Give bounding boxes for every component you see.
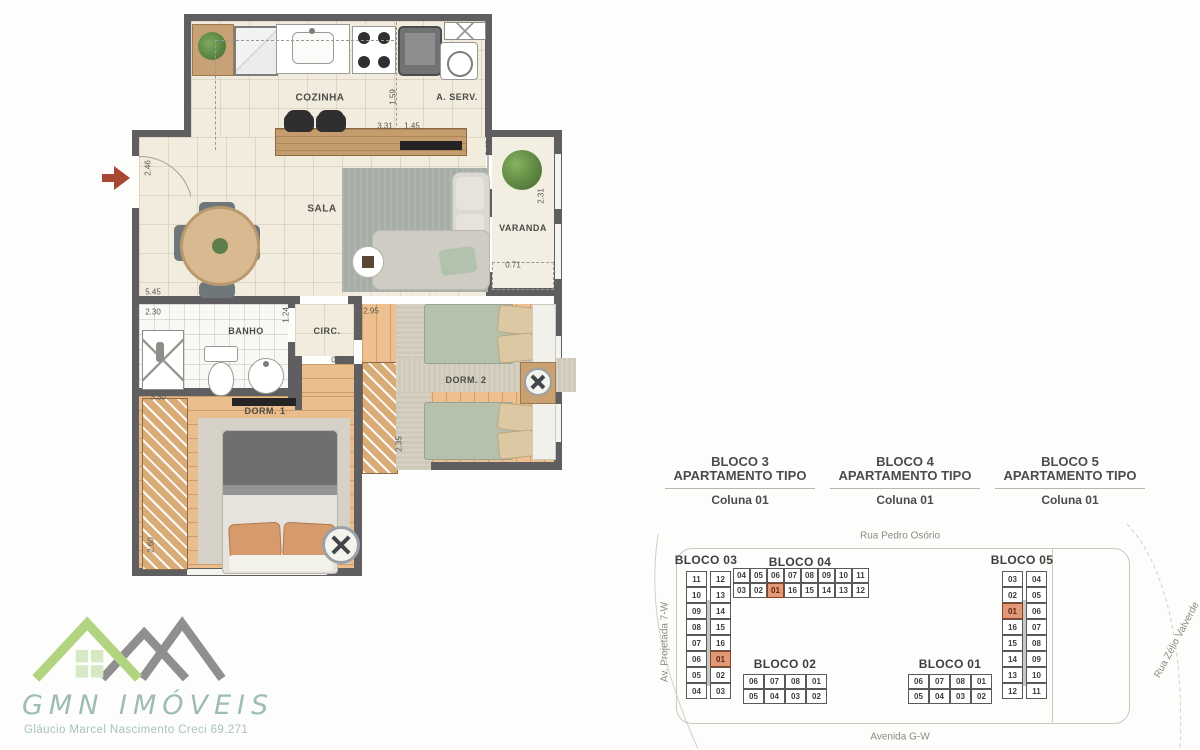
street-label-top: Rua Pedro Osório (860, 531, 940, 542)
room-label-aserv: A. SERV. (436, 92, 478, 102)
unit-cell: 06 (767, 568, 784, 583)
shower-column-icon (156, 342, 164, 362)
lot-divider-line (1052, 548, 1053, 722)
dim-label: 1.59 (389, 89, 398, 105)
wall (184, 14, 191, 132)
wall (132, 130, 191, 137)
unit-cell-highlighted: 01 (1002, 603, 1023, 619)
street-label-bottom: Avenida G-W (870, 732, 929, 743)
brand-tagline: Gláucio Marcel Nascimento Creci 69.271 (24, 724, 248, 736)
header-column: Coluna 01 (810, 493, 1000, 507)
unit-cell: 09 (686, 603, 707, 619)
unit-cell: 01 (971, 674, 992, 689)
brand-name: GMN IMÓVEIS (22, 690, 274, 721)
wall (486, 130, 562, 137)
unit-cell: 15 (801, 583, 818, 598)
header-block-name: BLOCO 4 (810, 455, 1000, 469)
dim-label: 2.40 (485, 140, 494, 156)
room-label-cozinha: COZINHA (295, 93, 344, 104)
street-label-left: Av. Projetada 7-W (660, 602, 671, 682)
unit-cell: 13 (710, 587, 731, 603)
dim-label: 2.35 (395, 436, 404, 452)
header-type: APARTAMENTO TIPO (645, 469, 835, 483)
unit-cell: 02 (750, 583, 767, 598)
header-type: APARTAMENTO TIPO (975, 469, 1165, 483)
unit-cell: 02 (710, 667, 731, 683)
balcony-utility-area (492, 262, 554, 290)
pillow-icon (497, 402, 536, 433)
service-divider-line (396, 22, 397, 136)
unit-cell: 08 (785, 674, 806, 689)
entry-arrow-tail (102, 174, 114, 182)
wall (184, 14, 485, 21)
room-label-banho: BANHO (228, 326, 264, 336)
header-divider (665, 488, 815, 489)
side-table (352, 246, 384, 278)
toilet-icon (208, 362, 234, 396)
wall (354, 296, 362, 340)
unit-cell: 05 (743, 689, 764, 704)
pillow-icon (497, 304, 536, 336)
unit-cell: 04 (764, 689, 785, 704)
block-label-bloco03: BLOCO 03 (675, 553, 737, 567)
dining-table (180, 206, 260, 286)
room-label-varanda: VARANDA (499, 223, 547, 233)
site-plan: Rua Pedro Osório Avenida G-W Av. Projeta… (640, 520, 1200, 750)
unit-cell: 14 (710, 603, 731, 619)
unit-cell: 05 (686, 667, 707, 683)
dim-label: 2.95 (363, 307, 379, 316)
dim-label: 2.31 (537, 188, 546, 204)
unit-cell: 04 (733, 568, 750, 583)
block-label-bloco01: BLOCO 01 (919, 657, 981, 671)
faucet-icon (309, 28, 315, 34)
unit-cell: 04 (929, 689, 950, 704)
stove-icon (352, 26, 396, 74)
header-divider (995, 488, 1145, 489)
header-divider (830, 488, 980, 489)
agency-logo: GMN IMÓVEIS Gláucio Marcel Nascimento Cr… (22, 612, 282, 742)
header-column: Coluna 01 (645, 493, 835, 507)
apartment-floor-plan: COZINHA A. SERV. SALA VARANDA BANHO CIRC… (130, 14, 566, 580)
unit-cell: 06 (743, 674, 764, 689)
unit-cell: 13 (835, 583, 852, 598)
sofa-blanket (438, 246, 477, 277)
header-block-name: BLOCO 5 (975, 455, 1165, 469)
unit-cell: 12 (852, 583, 869, 598)
header-column: Coluna 01 (975, 493, 1165, 507)
unit-grid-bloco04: 04050607080910110302011615141312 (733, 568, 869, 598)
fridge-icon (398, 26, 442, 76)
block-label-bloco05: BLOCO 05 (991, 553, 1053, 567)
bath-sink-icon (248, 358, 284, 394)
room-label-dorm2: DORM. 2 (445, 375, 486, 385)
unit-cell: 04 (686, 683, 707, 699)
unit-cell: 02 (971, 689, 992, 704)
unit-cell: 03 (710, 683, 731, 699)
unit-cell: 16 (784, 583, 801, 598)
room-label-circ: CIRC. (314, 326, 341, 336)
stool-icon (286, 110, 312, 132)
unit-cell: 14 (1002, 651, 1023, 667)
dim-label: 1.45 (404, 122, 420, 131)
dim-label: 0.90 (331, 356, 347, 365)
dim-label: 3.31 (377, 122, 393, 131)
unit-cell: 12 (1002, 683, 1023, 699)
page: COZINHA A. SERV. SALA VARANDA BANHO CIRC… (0, 0, 1200, 750)
unit-cell: 06 (908, 674, 929, 689)
unit-cell: 11 (1026, 683, 1047, 699)
unit-cell: 10 (686, 587, 707, 603)
guide-line (215, 40, 216, 150)
unit-cell: 16 (1002, 619, 1023, 635)
unit-grid-bloco01: 0607080105040302 (908, 674, 992, 704)
block-label-bloco02: BLOCO 02 (754, 657, 816, 671)
wall (295, 356, 302, 410)
unit-cell: 14 (818, 583, 835, 598)
unit-cell: 07 (764, 674, 785, 689)
header-bloco-4: BLOCO 4 APARTAMENTO TIPO Coluna 01 (810, 455, 1000, 507)
unit-cell: 09 (1026, 651, 1047, 667)
window (555, 224, 561, 279)
room-label-sala: SALA (307, 204, 336, 215)
pillow-icon (497, 429, 536, 460)
wall (132, 130, 139, 156)
unit-cell: 02 (806, 689, 827, 704)
unit-grid-bloco02: 0607080105040302 (743, 674, 827, 704)
plant-icon (198, 32, 226, 60)
wall (354, 364, 362, 470)
unit-grid-bloco03: 11121013091408150716060105020403 (686, 571, 731, 699)
unit-cell: 01 (806, 674, 827, 689)
washer-icon (440, 42, 478, 80)
window (555, 154, 561, 209)
dim-label: 2.46 (144, 160, 153, 176)
unit-cell: 03 (733, 583, 750, 598)
unit-cell: 08 (950, 674, 971, 689)
header-block-name: BLOCO 3 (645, 455, 835, 469)
unit-cell: 08 (801, 568, 818, 583)
stool-icon (318, 110, 344, 132)
unit-cell: 03 (950, 689, 971, 704)
unit-cell: 04 (1026, 571, 1047, 587)
guide-line (216, 40, 394, 41)
wall (485, 14, 492, 137)
tv-icon (400, 141, 462, 150)
unit-cell: 05 (750, 568, 767, 583)
bedroom1-floor-step (295, 364, 354, 396)
unit-cell: 15 (710, 619, 731, 635)
plant-icon (502, 150, 542, 190)
unit-cell: 08 (1026, 635, 1047, 651)
unit-cell: 10 (1026, 667, 1047, 683)
dim-label: 3.30 (150, 393, 166, 402)
logo-houses-icon (28, 612, 228, 688)
ceiling-fan-icon (322, 526, 360, 564)
mattress-end (532, 304, 556, 364)
unit-cell-highlighted: 01 (710, 651, 731, 667)
unit-cell: 07 (1026, 619, 1047, 635)
pillow-icon (497, 332, 536, 364)
block-label-bloco04: BLOCO 04 (769, 555, 831, 569)
wall (354, 470, 362, 576)
room-label-dorm1: DORM. 1 (244, 406, 285, 416)
unit-cell: 07 (686, 635, 707, 651)
sink-icon (292, 32, 334, 64)
unit-cell: 02 (1002, 587, 1023, 603)
kitchen-cabinet (234, 26, 278, 76)
dim-label: 2.60 (147, 537, 156, 553)
unit-cell: 08 (686, 619, 707, 635)
unit-cell: 09 (818, 568, 835, 583)
unit-cell: 03 (785, 689, 806, 704)
unit-cell: 12 (710, 571, 731, 587)
unit-cell-highlighted: 01 (767, 583, 784, 598)
unit-cell: 07 (784, 568, 801, 583)
unit-cell: 15 (1002, 635, 1023, 651)
mattress-end (532, 402, 556, 460)
unit-cell: 03 (1002, 571, 1023, 587)
unit-cell: 11 (686, 571, 707, 587)
header-bloco-5: BLOCO 5 APARTAMENTO TIPO Coluna 01 (975, 455, 1165, 507)
entry-arrow-icon (114, 166, 130, 190)
service-window-icon (444, 22, 486, 40)
tv-icon (232, 398, 296, 406)
dim-label: 2.30 (145, 308, 161, 317)
toilet-tank-icon (204, 346, 238, 362)
ceiling-fan-icon (524, 368, 552, 396)
unit-cell: 05 (1026, 587, 1047, 603)
dim-label: 5.45 (145, 288, 161, 297)
bed-double (222, 430, 338, 574)
unit-cell: 13 (1002, 667, 1023, 683)
dim-label: 0.71 (505, 261, 521, 270)
header-type: APARTAMENTO TIPO (810, 469, 1000, 483)
unit-cell: 11 (852, 568, 869, 583)
unit-cell: 05 (908, 689, 929, 704)
unit-cell: 06 (1026, 603, 1047, 619)
unit-cell: 16 (710, 635, 731, 651)
wardrobe (362, 362, 398, 474)
dim-label: 1.24 (282, 307, 291, 323)
unit-cell: 06 (686, 651, 707, 667)
unit-cell: 07 (929, 674, 950, 689)
unit-grid-bloco05: 03040205010616071508140913101211 (1002, 571, 1047, 699)
header-bloco-3: BLOCO 3 APARTAMENTO TIPO Coluna 01 (645, 455, 835, 507)
unit-cell: 10 (835, 568, 852, 583)
